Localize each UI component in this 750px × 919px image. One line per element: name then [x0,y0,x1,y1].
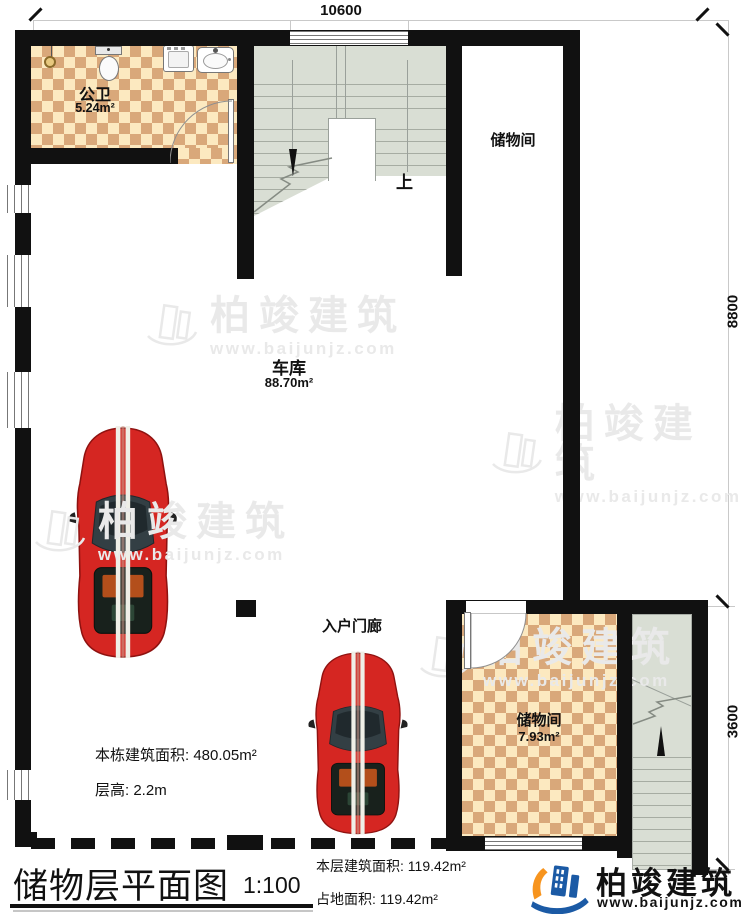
land-area-value: 119.42m² [380,891,438,907]
wall [15,148,178,164]
stairwell-treads [254,73,446,118]
title-underline-shadow [13,910,313,912]
window [290,31,408,45]
note-floor-height: 层高: 2.2m [95,779,167,800]
window [485,837,582,850]
stair-divider-line [345,46,346,118]
door-swing-arc [170,99,234,165]
stair-direction-arrow-icon [657,726,665,756]
sink-faucet [213,48,218,53]
watermark-logo-icon [30,504,90,564]
toilet-bowl [99,56,119,81]
room-area-storage-bottom: 7.93m² [479,729,599,744]
lower-stairs-treads [633,746,691,869]
dimension-label-right-upper: 8800 [725,290,742,334]
watermark-url: www.baijunjz.com [483,671,679,691]
extension-line [708,606,735,607]
wall [563,30,580,613]
floor-plan-canvas: 10600 8800 3600 上 [0,0,750,919]
stair-opening [328,118,376,181]
stairwell-landing [254,46,446,73]
room-area-bathroom: 5.24m² [45,101,145,115]
stair-direction-arrow-icon [289,149,297,176]
brand-website: www.baijunjz.com [597,894,743,910]
toilet-button [107,48,110,51]
floor-area-label: 本层建筑面积: [316,858,404,874]
stairs-up-label: 上 [396,168,413,193]
watermark: 柏竣建筑 www.baijunjz.com [487,404,750,507]
wall [692,600,708,875]
land-area-note: 占地面积: 119.42m² [316,889,438,909]
washer-drum [168,51,189,68]
window [7,255,31,307]
door-leaf [464,612,471,669]
note-floor-height-label: 层高: [95,782,129,799]
watermark-logo-icon [487,426,547,486]
sink-drain [228,58,231,61]
window [7,372,31,428]
dimension-line-top [33,20,728,21]
wall [446,614,462,851]
shower-head-icon [44,56,56,68]
column [236,600,256,617]
room-area-garage: 88.70m² [239,375,339,390]
washer-knob [167,47,171,50]
dimension-label-top: 10600 [310,2,372,19]
floor-area-note: 本层建筑面积: 119.42m² [316,856,466,876]
watermark-company: 柏竣建筑 [210,296,406,336]
floor-area-value: 119.42m² [408,858,466,874]
land-area-label: 占地面积: [316,891,376,907]
window [7,185,31,213]
sink-basin [203,53,228,69]
watermark-company: 柏竣建筑 [555,404,750,484]
garage-door-opening [31,838,446,849]
door-swing-arc [471,613,528,670]
note-building-area-value: 480.05m² [193,747,256,764]
stair-rail-line [407,60,408,172]
room-label-porch: 入户门廊 [302,615,402,636]
note-building-area: 本栋建筑面积: 480.05m² [95,744,257,765]
watermark: 柏竣建筑 www.baijunjz.com [142,296,406,359]
plan-title: 储物层平面图 [13,858,229,909]
room-label-storage-bottom: 储物间 [479,709,599,730]
watermark-logo-icon [142,298,202,358]
wall [237,30,254,279]
dimension-label-right-lower: 3600 [725,700,742,744]
room-label-storage-top: 储物间 [462,129,564,150]
car-top-view [306,650,410,836]
window [7,770,31,800]
plan-scale: 1:100 [243,872,301,899]
stair-divider-line [336,46,337,118]
watermark-url: www.baijunjz.com [555,487,750,507]
watermark: 柏竣建筑 www.baijunjz.com [30,502,294,565]
wall [617,614,632,858]
title-underline [10,904,313,908]
washer-knob [181,47,185,50]
wall [446,30,462,276]
note-floor-height-value: 2.2m [133,782,166,799]
watermark-company: 柏竣建筑 [98,502,294,542]
washer-knob [174,47,178,50]
brand-logo-icon [524,864,594,914]
watermark-url: www.baijunjz.com [98,545,294,565]
note-building-area-label: 本栋建筑面积: [95,747,189,764]
